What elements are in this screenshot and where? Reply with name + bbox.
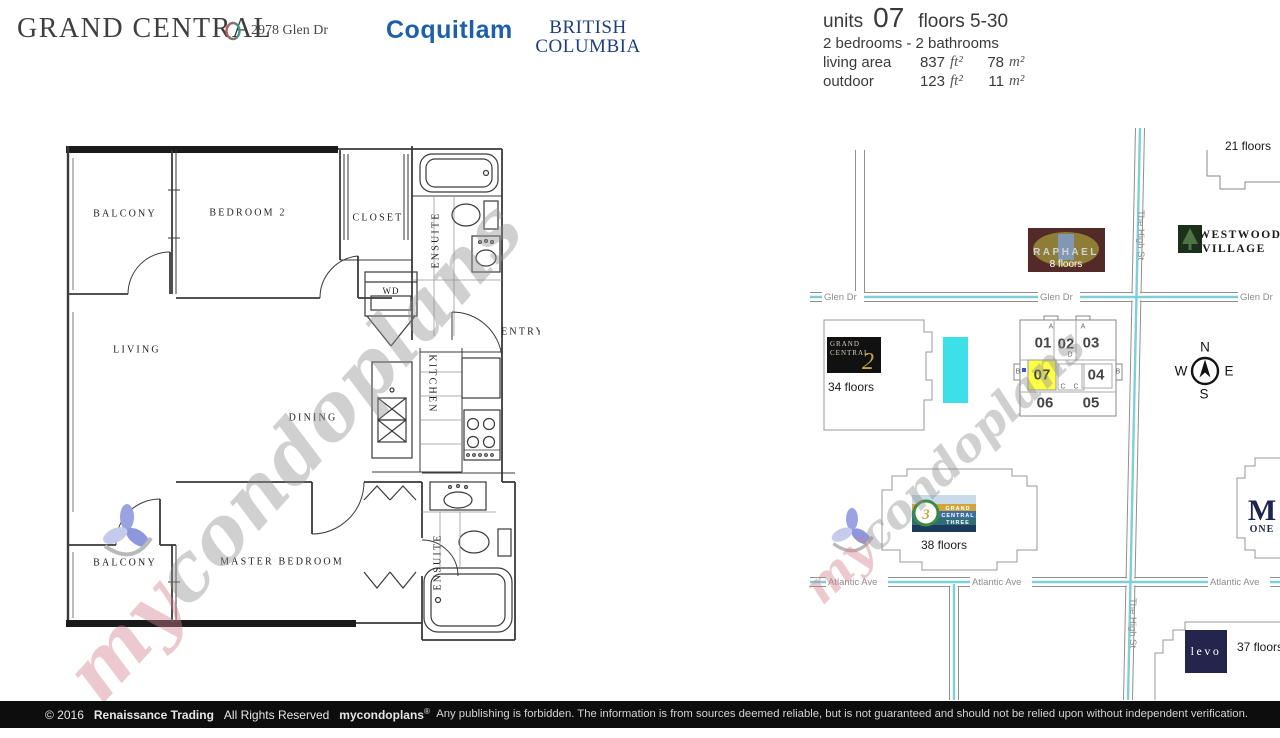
- compass-icon: N W E S: [1175, 340, 1234, 402]
- building-21-floors: 21 floors: [1207, 139, 1280, 189]
- street-label-atlantic-2: Atlantic Ave: [972, 577, 1021, 588]
- street-label-high-2: The High St: [1127, 598, 1138, 649]
- raphael-floors: 8 floors: [1050, 259, 1083, 270]
- footer-year: © 2016: [45, 708, 84, 722]
- gc3-floors: 38 floors: [921, 538, 967, 552]
- building-address: 2978 Glen Dr: [251, 23, 328, 39]
- footer-brand: mycondoplans: [339, 708, 424, 722]
- westwood-line2: VILLAGE: [1202, 243, 1266, 255]
- keyplate-letter-c1: C: [1060, 384, 1065, 391]
- unit-keyplate: 01 02 03 07 04 06 05 A A D B B C C: [1014, 316, 1122, 416]
- province-name: BRITISH COLUMBIA: [528, 18, 648, 56]
- room-label-entry: ENTRY: [501, 327, 540, 338]
- trillium-logo-map: [829, 508, 873, 551]
- unit-info-panel: units 07 floors 5-30 2 bedrooms - 2 bath…: [823, 2, 1039, 90]
- outdoor-sqm: 11: [980, 73, 1004, 90]
- gc3-line2: CENTRAL: [941, 513, 974, 519]
- keyplate-unit-07: 07: [1034, 367, 1051, 384]
- living-area-sqm: 78: [980, 54, 1004, 71]
- sqft-unit: ft²: [945, 73, 980, 90]
- building-grand-central-2: GRAND CENTRAL 2 34 floors: [824, 320, 932, 430]
- keyplate-letter-b1: B: [1016, 369, 1021, 376]
- unit-headline: units 07 floors 5-30: [823, 2, 1039, 34]
- sqm-unit: m²: [1004, 73, 1039, 90]
- street-label-atlantic-3: Atlantic Ave: [1210, 577, 1259, 588]
- room-label-closet: CLOSET: [353, 213, 404, 224]
- keyplate-unit-03: 03: [1083, 335, 1100, 352]
- m-one-m: M: [1248, 494, 1276, 527]
- sqft-unit: ft²: [945, 54, 980, 71]
- footer-copyright: © 2016Renaissance TradingAll Rights Rese…: [45, 707, 430, 722]
- gc3-number: 3: [921, 507, 930, 523]
- keyplate-unit-01: 01: [1035, 335, 1052, 352]
- site-map: 21 floors RAPHAEL 8 floors WESTWOOD VILL…: [810, 128, 1280, 700]
- trillium-logo: [100, 504, 152, 554]
- room-label-wd: WD: [383, 286, 400, 296]
- compass-e: E: [1224, 364, 1233, 379]
- gc3-line3: THREE: [946, 520, 970, 526]
- living-area-row: living area 837 ft² 78 m²: [823, 54, 1039, 71]
- unit-number: 07: [873, 2, 904, 34]
- room-label-living: LIVING: [113, 345, 161, 356]
- compass-w: W: [1175, 364, 1188, 379]
- building-levo: levo 37 floors: [1155, 622, 1280, 700]
- room-label-ensuite-bottom: ENSUITE: [433, 533, 444, 590]
- street-label-high-1: The High St: [1135, 210, 1146, 261]
- keyplate-letter-c2: C: [1073, 384, 1078, 391]
- province-line2: COLUMBIA: [528, 37, 648, 56]
- building-21-floors-label: 21 floors: [1225, 139, 1271, 153]
- m-one-one: ONE: [1250, 524, 1275, 535]
- building-m-one: M ONE: [1237, 458, 1280, 558]
- keyplate-unit-04: 04: [1088, 367, 1105, 384]
- outdoor-sqft: 123: [915, 73, 945, 90]
- outdoor-label: outdoor: [823, 73, 915, 90]
- footer-disclaimer: Any publishing is forbidden. The informa…: [425, 708, 1248, 720]
- brand-ring-icon: [224, 21, 244, 41]
- province-line1: BRITISH: [528, 18, 648, 37]
- pool-area: [943, 337, 968, 403]
- footer-bar: © 2016Renaissance TradingAll Rights Rese…: [0, 701, 1280, 728]
- street-label-glen-2: Glen Dr: [1040, 292, 1073, 303]
- keyplate-letter-a1: A: [1049, 324, 1054, 331]
- street-label-glen-3: Glen Dr: [1240, 292, 1273, 303]
- room-label-balcony-bottom: BALCONY: [93, 558, 157, 569]
- gc2-number: 2: [862, 349, 874, 375]
- room-label-ensuite-top: ENSUITE: [431, 211, 442, 268]
- room-label-kitchen: KITCHEN: [427, 354, 438, 413]
- room-label-dining: DINING: [289, 413, 338, 424]
- keyplate-unit-05: 05: [1083, 395, 1100, 412]
- levo-floors: 37 floors: [1237, 640, 1280, 654]
- bedrooms-bathrooms: 2 bedrooms - 2 bathrooms: [823, 35, 1039, 52]
- keyplate-unit-06: 06: [1037, 395, 1054, 412]
- keyplate-unit-02: 02: [1058, 336, 1075, 353]
- floors-range: floors 5-30: [918, 11, 1008, 33]
- keyplate-letter-d: D: [1067, 352, 1072, 359]
- gc2-floors: 34 floors: [828, 380, 874, 394]
- keyplate-letter-a2: A: [1081, 324, 1086, 331]
- city-name: Coquitlam: [386, 16, 513, 45]
- footer-company: Renaissance Trading: [94, 708, 214, 722]
- levo-name: levo: [1191, 644, 1222, 658]
- floor-plan: BALCONY BEDROOM 2 CLOSET ENSUITE WD ENTR…: [60, 140, 540, 645]
- compass-s: S: [1199, 387, 1208, 402]
- raphael-name: RAPHAEL: [1033, 247, 1099, 258]
- compass-n: N: [1200, 340, 1210, 355]
- units-label: units: [823, 11, 863, 33]
- living-area-label: living area: [823, 54, 915, 71]
- gc2-line1: GRAND: [830, 340, 860, 348]
- keyplate-letter-b2: B: [1116, 369, 1121, 376]
- gc3-line1: GRAND: [945, 506, 970, 512]
- living-area-sqft: 837: [915, 54, 945, 71]
- room-label-master-bedroom: MASTER BEDROOM: [220, 557, 344, 568]
- sqm-unit: m²: [1004, 54, 1039, 71]
- footer-rights: All Rights Reserved: [224, 708, 329, 722]
- building-raphael: RAPHAEL 8 floors: [1028, 228, 1105, 272]
- street-label-glen-1: Glen Dr: [824, 292, 857, 303]
- westwood-line1: WESTWOOD: [1199, 229, 1280, 241]
- building-westwood-village: WESTWOOD VILLAGE: [1178, 225, 1280, 255]
- room-label-bedroom2: BEDROOM 2: [209, 208, 286, 219]
- street-label-atlantic-1: Atlantic Ave: [828, 577, 877, 588]
- outdoor-area-row: outdoor 123 ft² 11 m²: [823, 73, 1039, 90]
- room-label-balcony-top: BALCONY: [93, 209, 157, 220]
- building-grand-central-3: 3 GRAND CENTRAL THREE 38 floors: [882, 469, 1037, 570]
